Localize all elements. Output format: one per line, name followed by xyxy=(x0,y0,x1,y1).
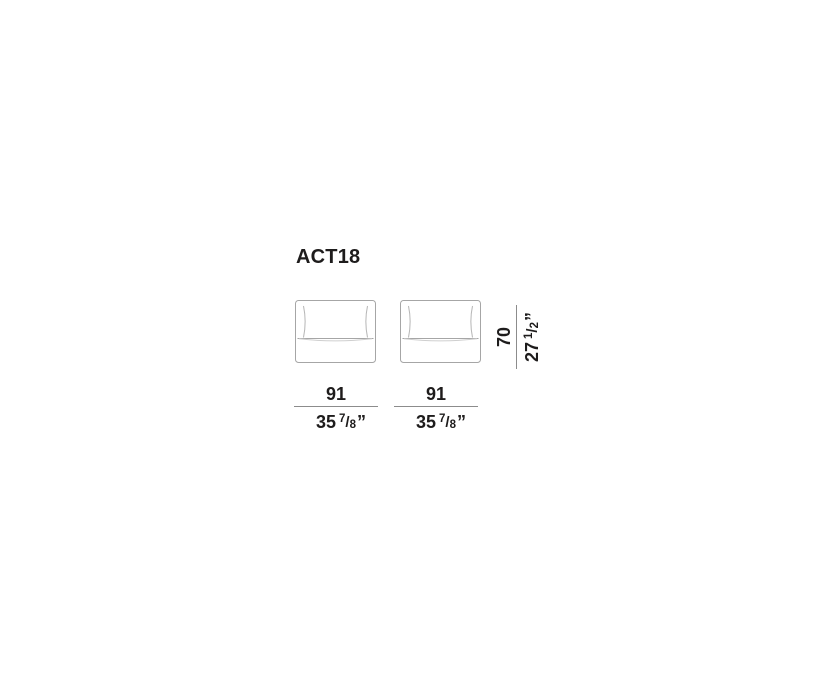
inch-whole: 27 xyxy=(522,342,542,362)
height-dimension-label: 70 271/2” xyxy=(495,305,547,369)
fraction-numerator: 1 xyxy=(523,333,535,339)
back-cushion-right-seam xyxy=(471,306,473,338)
inch-whole: 35 xyxy=(316,412,336,432)
model-code-title: ACT18 xyxy=(296,249,360,266)
sofa-front-view-1 xyxy=(295,300,376,363)
height-cm-value: 70 xyxy=(495,305,513,369)
fraction-slash: / xyxy=(524,328,541,332)
width-dimension-label-1: 91 357/8” xyxy=(294,385,378,437)
inch-whole: 35 xyxy=(416,412,436,432)
seat-sag-curve xyxy=(404,339,477,341)
sofa-drawing-svg xyxy=(295,300,376,363)
width-inch-value: 357/8” xyxy=(299,407,383,437)
fraction-denominator: 2 xyxy=(529,322,541,328)
back-cushion-left-seam xyxy=(409,306,411,338)
sofa-outline-rect xyxy=(401,301,481,363)
inch-unit-mark: ” xyxy=(522,312,542,321)
fraction-denominator: 8 xyxy=(450,419,456,431)
width-inch-value: 357/8” xyxy=(399,407,483,437)
width-cm-value: 91 xyxy=(394,385,478,403)
width-cm-value: 91 xyxy=(294,385,378,403)
back-cushion-left-seam xyxy=(304,306,306,338)
height-inch-value: 271/2” xyxy=(517,305,547,369)
fraction-denominator: 8 xyxy=(350,419,356,431)
sofa-drawing-svg xyxy=(400,300,481,363)
back-cushion-right-seam xyxy=(366,306,368,338)
width-dimension-label-2: 91 357/8” xyxy=(394,385,478,437)
inch-unit-mark: ” xyxy=(457,412,466,432)
spec-sheet-page: ACT18 70 271/2” 91 357/8” 91 xyxy=(0,0,840,679)
sofa-front-view-2 xyxy=(400,300,481,363)
sofa-outline-rect xyxy=(296,301,376,363)
seat-sag-curve xyxy=(299,339,372,341)
inch-unit-mark: ” xyxy=(357,412,366,432)
